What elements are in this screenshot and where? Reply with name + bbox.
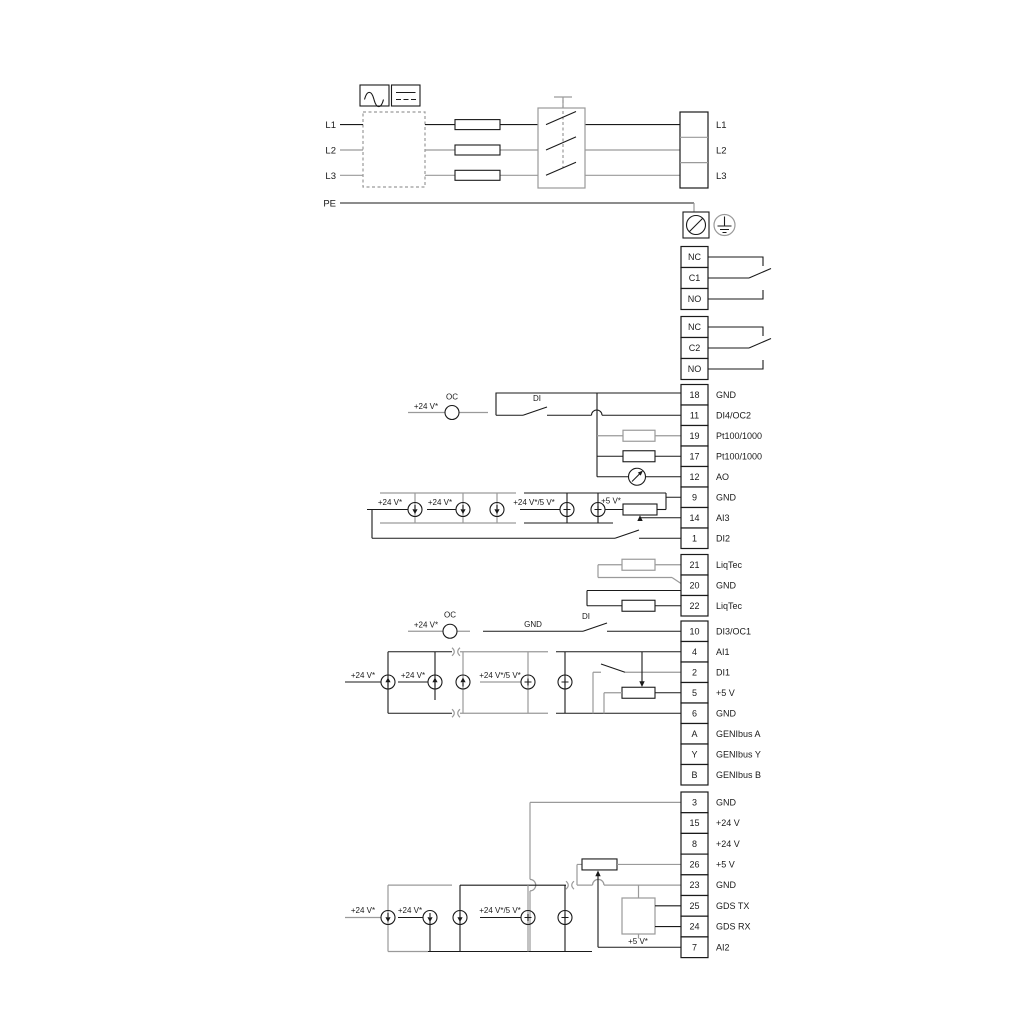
di4-switch-wires [496,393,681,415]
terminal-number: NO [688,364,702,374]
phase-label-l1-right: L1 [716,120,727,131]
terminal-number: 23 [689,880,699,890]
terminal-label: GENIbus B [716,770,761,780]
ai3-branch-verticals-black [567,493,598,523]
fuse-l2 [455,145,500,155]
annotation-oc: OC [444,611,456,620]
terminal-label: GND [716,492,737,502]
gds-tx-rx-wires [655,906,681,927]
filter-dashed-box [363,112,425,187]
terminal-label: +24 V [716,839,740,849]
pot-ai1-left-wire [604,693,622,714]
phase-label-pe: PE [323,199,336,210]
gnd3-wire [530,802,681,951]
di3-switch-blade [583,623,607,631]
terminal-label: +5 V [716,859,735,869]
di1-switch-blade [601,664,625,672]
terminal-number: 21 [689,560,699,570]
terminal-number: 15 [689,818,699,828]
terminal-number: 18 [689,390,699,400]
terminal-number: 17 [689,451,699,461]
io3-branch-verticals-black [430,885,565,951]
annotation-24v: +24 V* [351,671,375,680]
liqtec-wiring [587,559,681,611]
terminal-number: 7 [692,942,697,952]
relay1-contact-blade [749,269,771,279]
phase-label-l2-right: L2 [716,146,727,157]
di3-di-label: DI [582,612,590,621]
phase-label-l1-left: L1 [325,120,336,131]
open-collector-icon-1 [445,406,459,420]
terminal-number: 1 [692,533,697,543]
ac-symbol-box [360,85,389,106]
annotation-24v-5v: +24 V*/5 V* [479,906,521,915]
terminal-label: GND [716,580,737,590]
terminal-number: 11 [690,410,699,420]
terminal-block-io3: 3GND15+24 V8+24 V26+5 V23GND25GDS TX24GD… [681,792,751,958]
terminal-label: DI1 [716,667,730,677]
phase-label-l3-right: L3 [716,171,727,182]
terminal-number: Y [691,749,697,759]
relay2-block: NCC2NO [681,317,708,380]
terminal-label: +5 V [716,688,735,698]
potentiometer-ai3 [623,504,657,515]
terminal-block-io2: 10DI3/OC14AI12DI15+5 V6GNDAGENIbus AYGEN… [681,621,761,785]
potentiometer-ai2 [582,859,617,870]
liqtec-sensor1 [622,559,655,570]
terminal-number: B [691,770,697,780]
potentiometer-ai1 [622,687,655,698]
terminal-number: 5 [692,688,697,698]
terminal-label: AO [716,472,729,482]
relay2-wiring [708,327,771,369]
terminal-number: 3 [692,797,697,807]
annotation-gnd: GND [524,620,542,629]
power-input-section: L1 L2 L3 PE L1 L2 L3 [323,85,735,238]
io3-wiring: +24 V* +24 V* +24 V*/5 V* +5 V* [345,802,681,951]
relay2-wires [708,327,763,369]
terminal-label: GND [716,390,737,400]
terminal-number: 20 [689,580,699,590]
relay1-wiring [708,257,771,299]
terminal-label: AI2 [716,942,730,952]
terminal-number: C1 [689,273,701,283]
relay2-contact-blade [749,339,771,349]
terminal-number: 10 [689,626,699,636]
annotation-24v: +24 V* [398,906,422,915]
earth-ground-icon [718,217,732,233]
phase-label-l2-left: L2 [325,146,336,157]
terminal-number: 25 [689,901,699,911]
io1-wiring: DI +24 V* OC +24 V* +24 V* +24 V*/5 V* +… [367,393,681,539]
wiring-diagram: L1 L2 L3 PE L1 L2 L3 [0,0,1024,1024]
terminal-number: 9 [692,492,697,502]
annotation-24v: +24 V* [401,671,425,680]
annotation-24v-5v: +24 V*/5 V* [479,671,521,680]
annotation-24v: +24 V* [378,498,402,507]
terminal-number: A [691,729,697,739]
terminal-label: GDS TX [716,901,749,911]
gds-sensor-box [622,898,655,934]
terminal-label: Pt100/1000 [716,451,762,461]
relay1-wires [708,257,763,299]
terminal-number: 4 [692,647,697,657]
open-collector-icon-2 [443,624,457,638]
liqtec-sensor2 [622,600,655,611]
terminal-number: 19 [689,431,699,441]
power-terminal-block [680,112,708,188]
terminal-number: 8 [692,839,697,849]
terminal-number: NC [688,252,701,262]
terminal-number: 26 [689,859,699,869]
annotation-24v: +24 V* [428,498,452,507]
terminal-number: NO [688,294,702,304]
terminal-label: LiqTec [716,601,743,611]
terminal-label: GND [716,880,737,890]
ai1-wiper-arrow [639,681,644,687]
wiring-diagram-page: L1 L2 L3 PE L1 L2 L3 [0,0,1024,1024]
terminal-label: DI3/OC1 [716,626,751,636]
annotation-5v: +5 V* [601,497,621,506]
terminal-number: 24 [689,922,699,932]
annotation-24v: +24 V* [414,402,438,411]
io2-wiring: +24 V* OC GND DI +24 V* +24 V* +24 V*/5 … [345,611,681,718]
terminal-number: 6 [692,708,697,718]
terminal-label: AI1 [716,647,730,657]
terminal-label: +24 V [716,818,740,828]
terminal-label: GND [716,708,737,718]
terminal-label: GND [716,797,737,807]
terminal-label: LiqTec [716,560,743,570]
terminal-label: GENIbus A [716,729,761,739]
fuse-l1 [455,120,500,130]
relay1-block: NCC1NO [681,247,708,310]
terminal-label: GENIbus Y [716,749,761,759]
ai2-wiper-arrow [595,871,600,877]
terminal-number: 12 [689,472,699,482]
terminal-number: 22 [689,601,699,611]
terminal-number: 2 [692,667,697,677]
di4-di-label: DI [533,394,541,403]
main-switch-box [538,108,585,188]
alt-connection-brackets-io3 [566,881,574,889]
annotation-24v: +24 V* [351,906,375,915]
terminal-label: Pt100/1000 [716,431,762,441]
terminal-label: AI3 [716,513,730,523]
terminal-number: 14 [689,513,699,523]
terminal-block-io1: 18GND11DI4/OC219Pt100/100017Pt100/100012… [681,385,762,549]
annotation-oc: OC [446,393,458,402]
pt100-sensor-19 [623,430,655,441]
terminal-label: GDS RX [716,922,751,932]
terminal-label: DI2 [716,533,730,543]
di4-switch-blade [523,407,547,415]
terminal-number: NC [688,322,701,332]
di2-switch-blade [615,530,639,538]
annotation-24v-5v: +24 V*/5 V* [513,498,555,507]
ai3-wiper-wire [640,518,681,521]
annotation-5v: +5 V* [628,937,648,946]
dc-symbol-box [392,85,421,106]
terminal-label: DI4/OC2 [716,410,751,420]
pt100-sensor-17 [623,451,655,462]
terminal-number: C2 [689,343,701,353]
terminal-block-liqtec: 21LiqTec20GND22LiqTec [681,555,743,617]
phase-label-l3-left: L3 [325,171,336,182]
annotation-24v: +24 V* [414,621,438,630]
fuse-l3 [455,170,500,180]
